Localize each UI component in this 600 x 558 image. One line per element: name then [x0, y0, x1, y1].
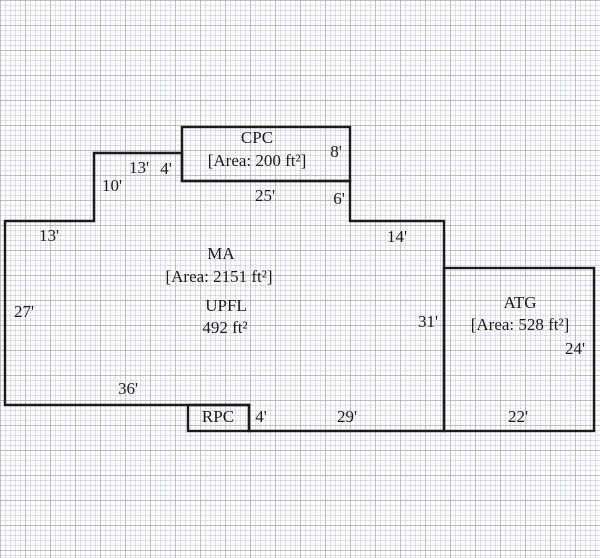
dim-label-13ft-top: 13': [129, 158, 149, 178]
room-label-rpc: RPC: [202, 407, 234, 427]
room-label-cpc: CPC: [241, 128, 273, 148]
dim-label-4ft-cpc-left: 4': [160, 159, 172, 179]
dim-label-22ft-atg-bottom: 22': [508, 407, 528, 427]
dim-label-36ft-ma-bottom: 36': [118, 379, 138, 399]
ma-room-outline: [5, 153, 444, 431]
graph-paper-canvas: CPC [Area: 200 ft²] MA [Area: 2151 ft²] …: [0, 0, 600, 558]
area-label-atg: [Area: 528 ft²]: [471, 315, 570, 335]
dim-label-8ft-cpc-right: 8': [330, 142, 342, 162]
room-label-upfl: UPFL: [205, 296, 247, 316]
area-label-ma: [Area: 2151 ft²]: [165, 267, 272, 287]
dim-label-10ft-step: 10': [102, 176, 122, 196]
area-label-cpc: [Area: 200 ft²]: [208, 151, 307, 171]
dim-label-13ft-left: 13': [39, 226, 59, 246]
area-label-upfl: 492 ft²: [202, 318, 247, 338]
dim-label-27ft-left: 27': [14, 302, 34, 322]
dim-label-4ft-rpc-right: 4': [255, 407, 267, 427]
dim-label-14ft-mid: 14': [387, 227, 407, 247]
dim-label-6ft-below-cpc: 6': [333, 189, 345, 209]
dim-label-29ft-bottom-mid: 29': [337, 407, 357, 427]
dim-label-24ft-atg-right: 24': [565, 339, 585, 359]
walls-layer: [0, 0, 600, 558]
dim-label-31ft-ma-right: 31': [418, 312, 438, 332]
dim-label-25ft-cpc-bottom: 25': [255, 186, 275, 206]
room-label-atg: ATG: [503, 293, 536, 313]
room-label-ma: MA: [207, 244, 234, 264]
